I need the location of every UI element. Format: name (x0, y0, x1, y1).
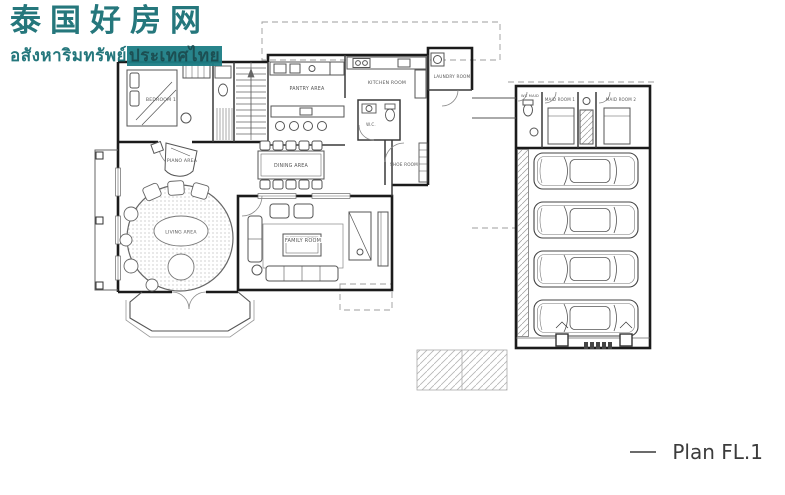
watermark-subtitle: อสังหาริมทรัพย์ประเทศไทย (10, 42, 222, 69)
staircase (236, 62, 266, 140)
car-3 (534, 251, 638, 287)
garage (518, 150, 639, 337)
floor-plan-page: BEDROOM 1 PANTRY AREA KITCHEN ROOM LAUND… (0, 0, 785, 495)
room-label-pantry: PANTRY AREA (290, 86, 326, 92)
bathroom (359, 104, 395, 140)
pantry-area (270, 62, 344, 131)
bay-window (126, 292, 254, 337)
watermark-subtitle-plain: อสังหาริมทรัพย์ (10, 46, 127, 66)
porch (95, 150, 118, 290)
maid-bed-1 (548, 108, 574, 144)
laundry-room (431, 53, 458, 106)
car-1 (534, 153, 638, 189)
watermark: 泰国好房网 อสังหาริมทรัพย์ประเทศไทย (10, 4, 222, 69)
watermark-title: 泰国好房网 (10, 4, 222, 40)
room-label-living: LIVING AREA (165, 230, 197, 236)
tv-cabinet-icon (378, 212, 388, 266)
plan-title: Plan FL.1 (672, 440, 763, 464)
room-label-kitchen: KITCHEN ROOM (368, 80, 406, 86)
corridor (472, 98, 516, 118)
room-label-laundry: LAUNDRY ROOM (434, 74, 471, 79)
car-2 (534, 202, 638, 238)
room-label-wc-maid: WC MAID (521, 94, 539, 98)
maid-bath (580, 98, 593, 145)
room-label-bath: W.C. (366, 122, 376, 127)
room-label-dining: DINING AREA (274, 163, 309, 169)
room-label-shoe: SHOE ROOM (390, 162, 418, 167)
room-label-family: FAMILY ROOM (285, 238, 321, 244)
plan-title-block: Plan FL.1 (630, 440, 763, 464)
room-label-bedroom: BEDROOM 1 (146, 97, 176, 103)
living-area (120, 180, 233, 291)
room-label-piano: PIANO AREA (167, 158, 198, 164)
cabinet-icon (349, 212, 371, 260)
room-label-maid1: MAID ROOM 1 (545, 97, 576, 102)
watermark-subtitle-highlight: ประเทศไทย (127, 46, 222, 66)
closet-strip (215, 66, 232, 140)
maid-bed-2 (604, 108, 630, 144)
room-label-maid2: MAID ROOM 2 (606, 97, 637, 102)
floor-plan-drawing: BEDROOM 1 PANTRY AREA KITCHEN ROOM LAUND… (0, 0, 785, 495)
kitchen-room (347, 57, 426, 98)
leader-line (630, 451, 656, 453)
car-4 (534, 300, 638, 336)
pavement (417, 350, 507, 390)
